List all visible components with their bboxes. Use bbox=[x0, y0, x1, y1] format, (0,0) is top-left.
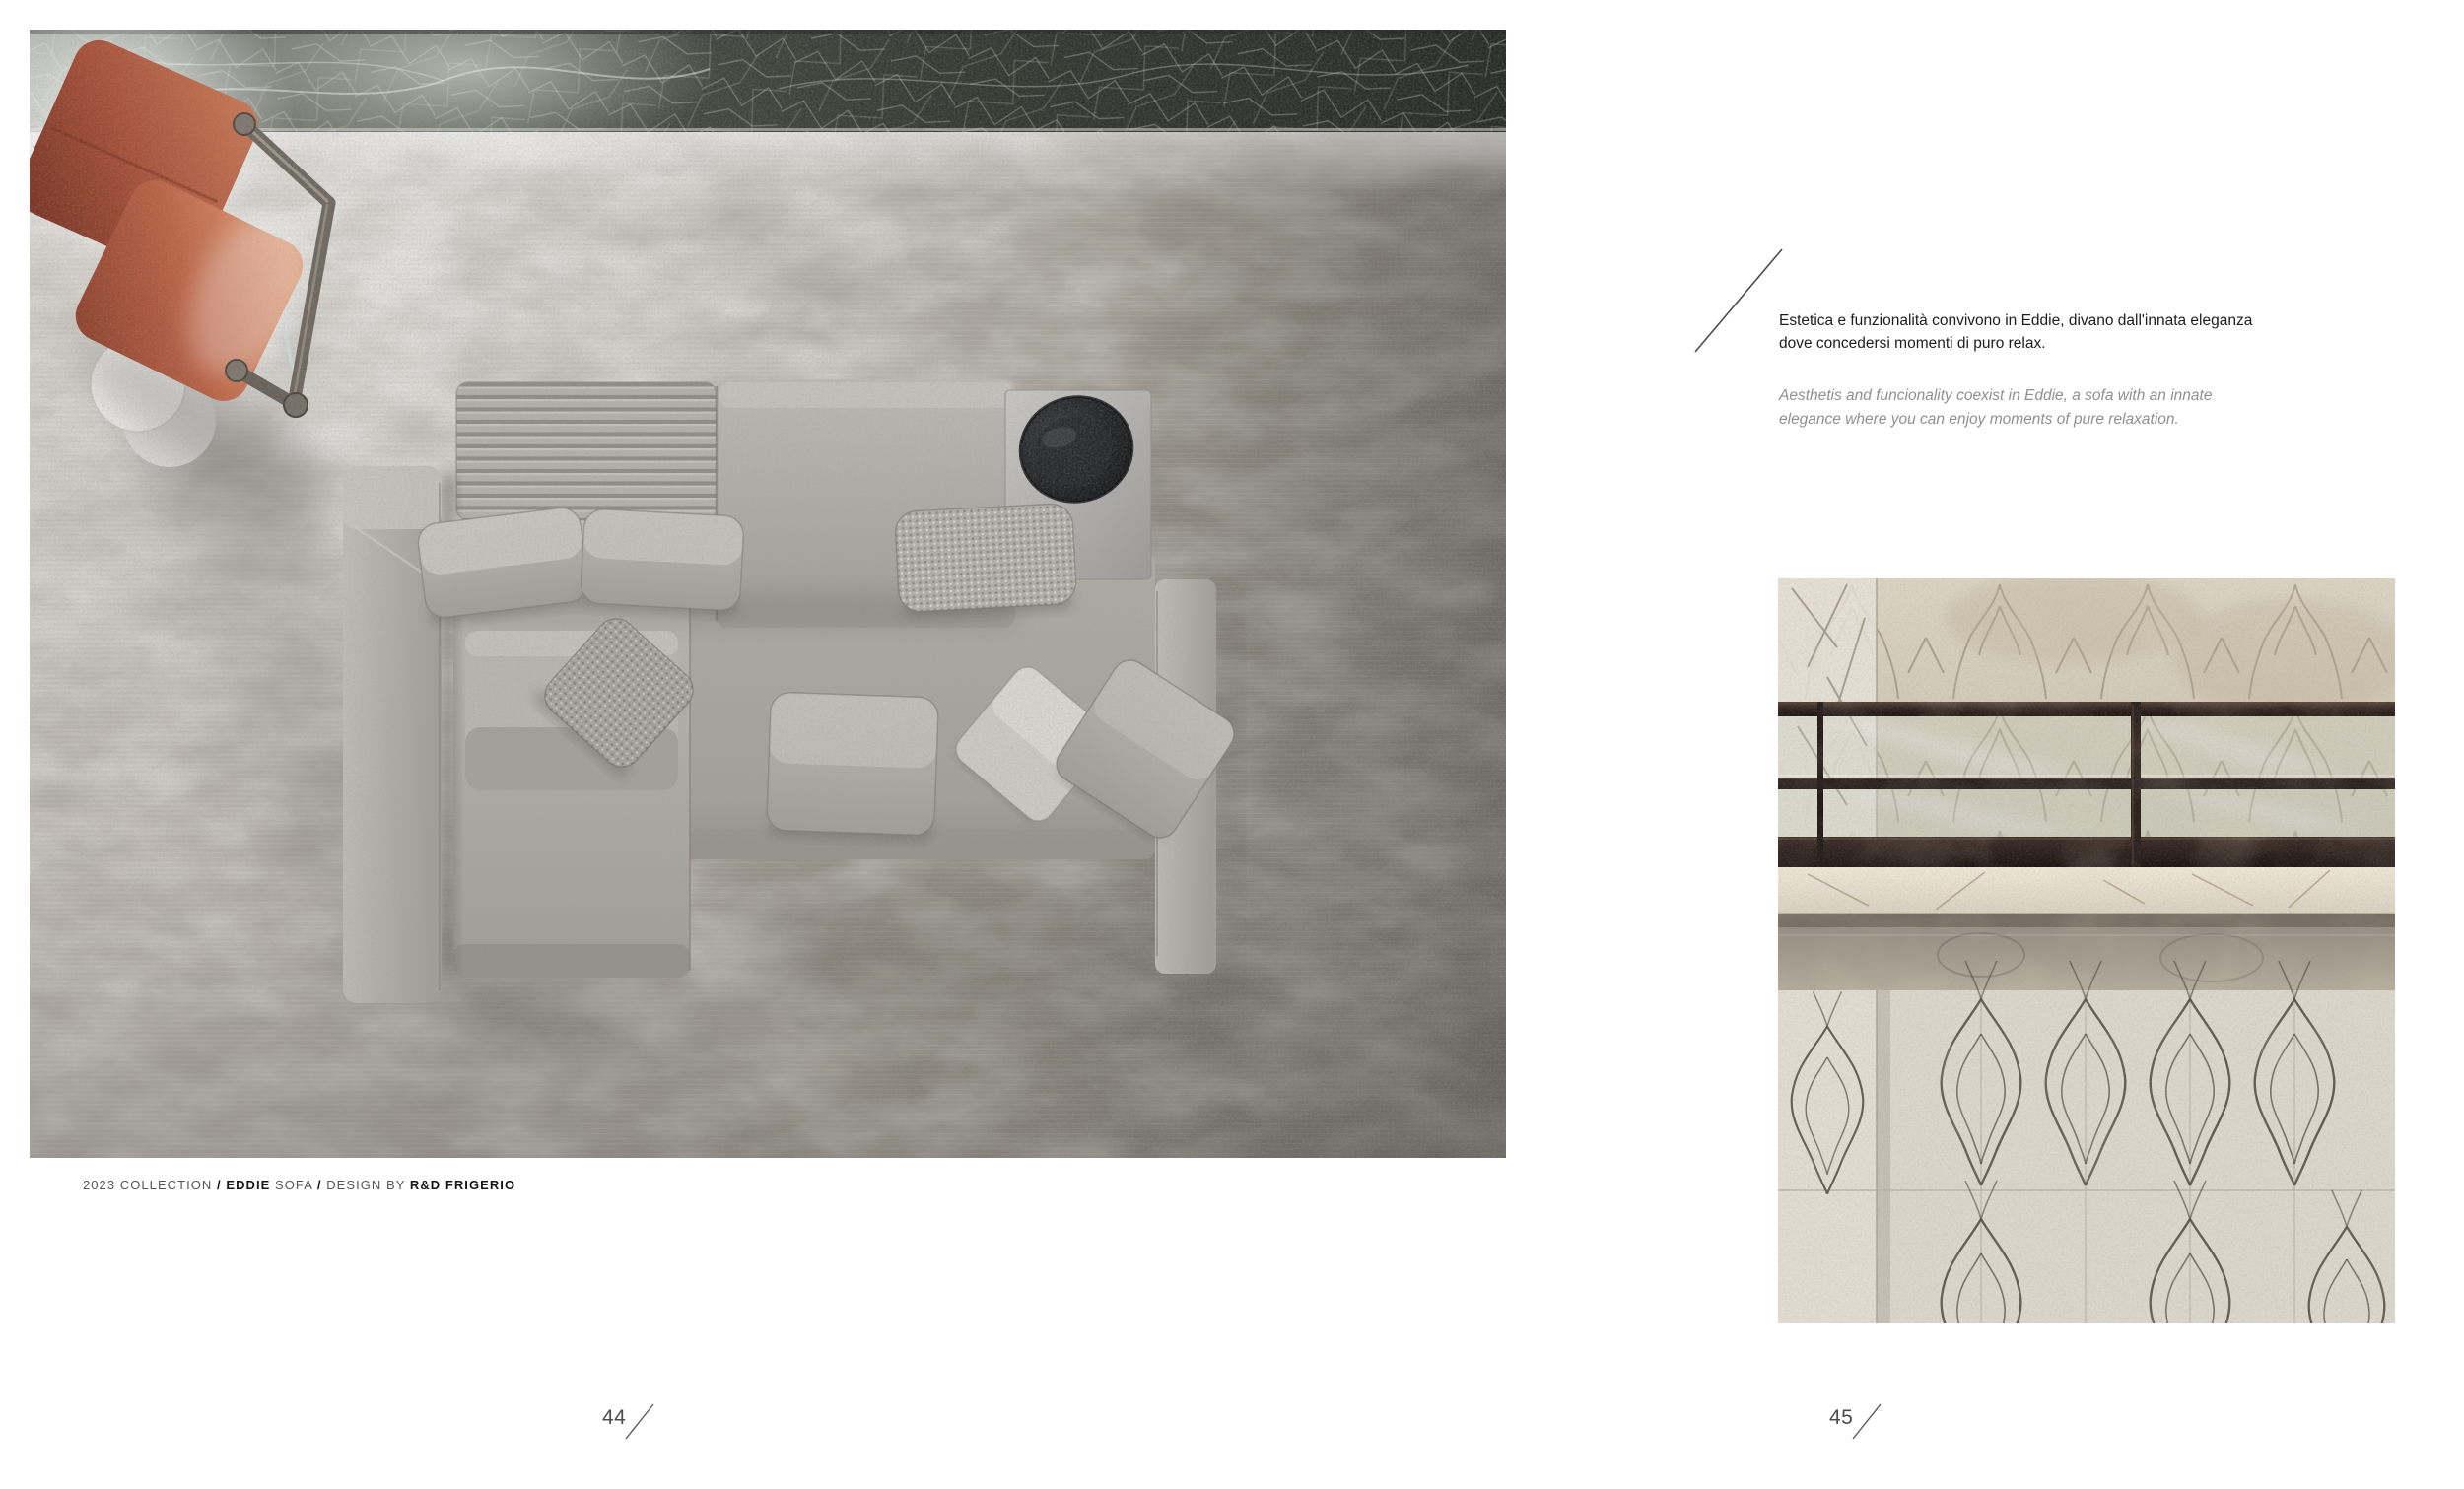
caption-collection: 2023 COLLECTION bbox=[83, 1178, 212, 1192]
catalog-spread: 2023 COLLECTION / EDDIE SOFA / DESIGN BY… bbox=[0, 0, 2464, 1489]
page-slash-icon bbox=[622, 1401, 657, 1443]
photo-grain bbox=[30, 30, 1506, 1158]
caption-slash: / bbox=[217, 1178, 222, 1192]
marble-photo-art bbox=[1778, 578, 2395, 1323]
marble-grain bbox=[1778, 578, 2395, 1323]
page-number-left: 44 bbox=[602, 1406, 671, 1452]
marble-interior-photo bbox=[1778, 578, 2395, 1323]
caption-design-by: DESIGN BY bbox=[326, 1178, 405, 1192]
sofa-photo bbox=[30, 30, 1506, 1158]
caption-product-type: SOFA bbox=[275, 1178, 312, 1192]
intro-paragraph-english: Aesthetis and funcionality coexist in Ed… bbox=[1779, 384, 2331, 431]
intro-text-block: Estetica e funzionalità convivono in Edd… bbox=[1779, 309, 2331, 431]
intro-paragraph-italian: Estetica e funzionalità convivono in Edd… bbox=[1779, 309, 2331, 355]
page-number-right: 45 bbox=[1829, 1406, 1898, 1452]
page-slash-icon bbox=[1849, 1401, 1884, 1443]
caption-slash: / bbox=[317, 1178, 322, 1192]
caption-product-name: EDDIE bbox=[226, 1178, 270, 1192]
caption-designer: R&D FRIGERIO bbox=[410, 1178, 515, 1192]
sofa-photo-art bbox=[30, 30, 1506, 1158]
diagonal-slash-decoration bbox=[1687, 243, 1790, 360]
product-caption: 2023 COLLECTION / EDDIE SOFA / DESIGN BY… bbox=[83, 1179, 515, 1192]
